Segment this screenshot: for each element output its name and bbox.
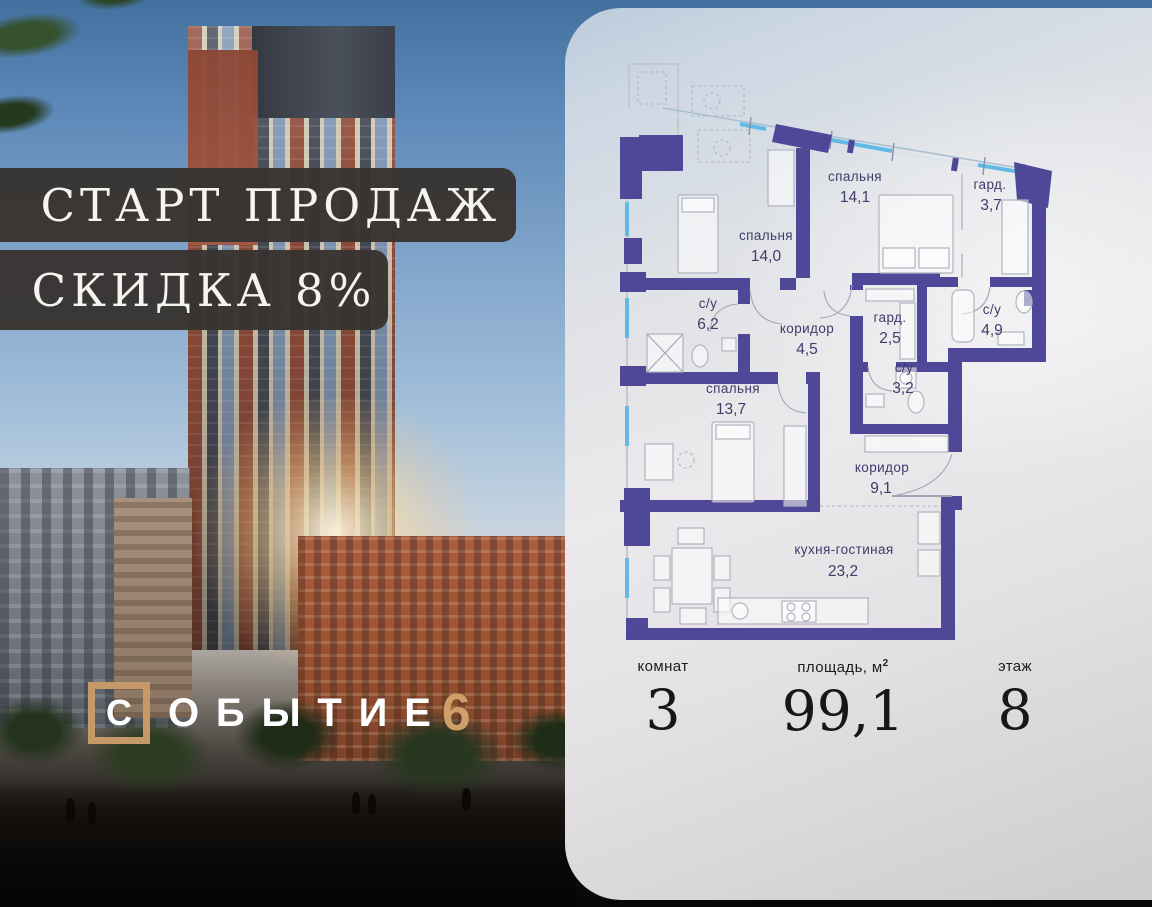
room-label: гард. [974,177,1007,192]
discount-badge: СКИДКА 8% [0,250,388,330]
stat-rooms-label: комнат [593,658,733,675]
stat-area-label: площадь, м2 [763,658,923,676]
room-label: коридор [780,321,834,336]
discount-badge-label: СКИДКА 8% [32,264,377,317]
floorplan-panel: спальня 14,1 гард. 3,7 спальня 14,0 с/у … [565,8,1152,900]
stat-floor-value: 8 [945,682,1085,740]
stat-area: площадь, м2 99,1 [763,658,923,741]
room-area: 6,2 [697,316,719,333]
room-label: гард. [874,310,907,325]
apartment-stats: комнат 3 площадь, м2 99,1 этаж 8 [565,658,1152,778]
sales-start-badge-label: СТАРТ ПРОДАЖ [41,179,502,232]
logo-letter-c: С [106,695,132,731]
room-area: 14,0 [751,248,782,265]
logo-framed-letter: С [88,682,150,744]
room-area: 2,5 [879,330,901,347]
room-label: коридор [855,460,909,475]
stat-floor-label: этаж [945,658,1085,675]
room-area: 4,9 [981,322,1003,339]
stat-rooms: комнат 3 [593,658,733,740]
cyclist-silhouette [88,802,96,824]
room-area: 9,1 [870,480,892,497]
room-area: 3,7 [980,197,1002,214]
stat-area-value: 99,1 [763,683,923,741]
pedestrian-silhouette [352,792,360,814]
room-label: с/у [895,360,913,375]
room-area: 23,2 [828,563,858,580]
room-label: спальня [828,169,882,184]
pedestrian-silhouette [462,788,471,810]
logo-number-6: 6 [442,687,471,739]
room-area: 14,1 [840,189,870,206]
square-superscript: 2 [883,658,889,669]
room-label: кухня-гостиная [794,542,893,557]
room-area: 3,2 [892,380,914,397]
room-label: с/у [983,302,1001,317]
sales-start-badge: СТАРТ ПРОДАЖ [0,168,516,242]
pedestrian-silhouette [66,798,75,822]
room-label: спальня [739,228,793,243]
pedestrian-silhouette [368,794,376,815]
sobytie-logo: С ОБЫТИЕ 6 [88,681,471,745]
stat-floor: этаж 8 [945,658,1085,740]
room-label: спальня [706,381,760,396]
stat-rooms-value: 3 [593,682,733,740]
logo-word: ОБЫТИЕ [168,693,448,733]
room-area: 13,7 [716,401,746,418]
street-foreground [0,779,576,907]
tower-dark-crown [252,26,395,118]
room-label: с/у [699,296,717,311]
floor-plan: спальня 14,1 гард. 3,7 спальня 14,0 с/у … [600,50,1070,670]
room-area: 4,5 [796,341,818,358]
